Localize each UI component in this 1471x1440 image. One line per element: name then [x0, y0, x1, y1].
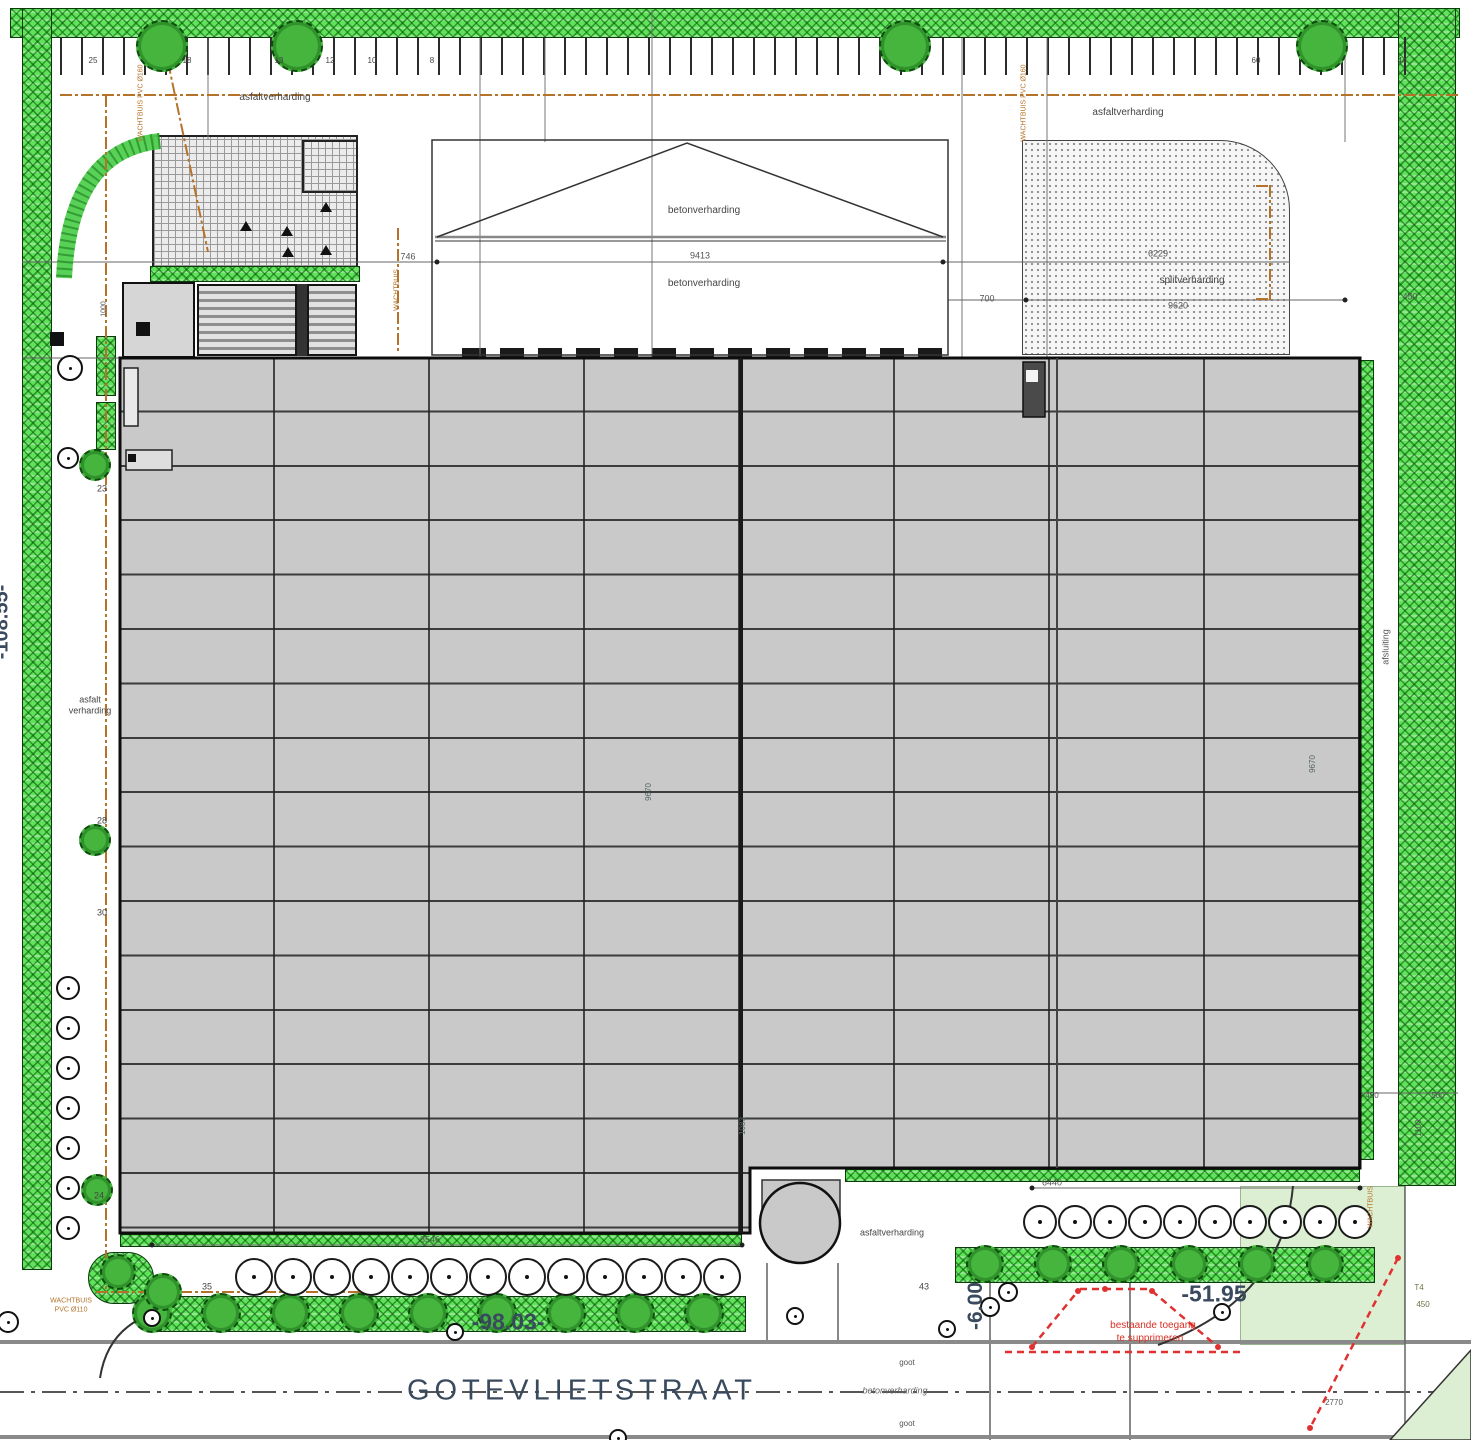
num-35: 35 [202, 1282, 212, 1291]
label-concrete-lower: betonverharding [668, 279, 740, 290]
label-conduit-bl-1: WACHTBUIS [50, 1297, 92, 1304]
pnum-10: 10 [368, 57, 377, 65]
dim-700: 700 [979, 294, 994, 303]
label-gravel: splitverharding [1159, 276, 1224, 287]
dim-450-top-right: 450 [1402, 292, 1417, 301]
num-30: 30 [97, 908, 107, 917]
pnum-60: 60 [1252, 57, 1261, 65]
dim-1083: 1083 [739, 1117, 747, 1135]
label-asphalt-left-1: asfalt [79, 695, 101, 704]
label-concrete-upper: betonverharding [668, 206, 740, 217]
note-line1: bestaande toegang [1110, 1321, 1196, 1332]
label-conduit-bl-2: PVC Ø110 [55, 1306, 88, 1313]
num-28: 28 [97, 816, 107, 825]
pnum-18: 18 [183, 57, 192, 65]
label-concrete-street: betonverharding [862, 1386, 927, 1395]
dim-1100-right: 1100 [1415, 1119, 1423, 1136]
dim-9670-left: 9670 [645, 783, 653, 801]
label-asphalt-left-2: verharding [69, 706, 112, 715]
pnum-13: 13 [275, 57, 284, 65]
num-24: 24 [94, 1191, 104, 1200]
num-23: 23 [97, 484, 107, 493]
dim-9620: 9620 [1168, 301, 1188, 310]
site-plan: GOTEVLIETSTRAAT -98.03- -51.95 -6.00 -10… [0, 0, 1471, 1440]
dim-6440: 6440 [1042, 1178, 1062, 1187]
dim-450-right: 450 [1365, 1092, 1378, 1100]
dim-2770: 2770 [1325, 1399, 1343, 1407]
label-conduit-topright: WACHTBUIS PVC Ø160 [1020, 64, 1027, 141]
label-asphalt-top-left: asfaltverharding [239, 93, 310, 104]
num-43: 43 [919, 1282, 929, 1291]
label-conduit-br: WACHTBUIS [1367, 1186, 1374, 1228]
pnum-12: 12 [326, 57, 335, 65]
pnum-25: 25 [89, 57, 98, 65]
note-line2: te supprimeren [1117, 1334, 1184, 1345]
annotation-layer: asfaltverhardingasfaltverhardingbetonver… [0, 0, 1471, 1440]
label-gutter-2: goot [899, 1420, 915, 1428]
label-conduit-mid: WACHTBUIS [393, 269, 400, 311]
dim-8546: 8546 [420, 1235, 440, 1244]
pnum-8: 8 [430, 57, 434, 65]
label-t4: T4 [1414, 1284, 1423, 1292]
label-asphalt-top-right: asfaltverharding [1092, 108, 1163, 119]
dim-9413: 9413 [690, 251, 710, 260]
label-asphalt-bottom: asfaltverharding [860, 1228, 924, 1237]
label-fence: afsluiting [1381, 629, 1390, 665]
dim-6229: 6229 [1148, 249, 1168, 258]
label-conduit-topleft: WACHTBUIS PVC Ø160 [137, 64, 144, 141]
dim-450-corner: 450 [1416, 1301, 1429, 1309]
dim-1000: 1000 [100, 301, 107, 317]
pnum-44: 44 [1398, 57, 1407, 65]
dim-9670-right: 9670 [1309, 755, 1317, 773]
dim-746: 746 [400, 252, 415, 261]
dim-500-right: 500 [1431, 1092, 1444, 1100]
label-gutter-1: goot [899, 1359, 915, 1367]
